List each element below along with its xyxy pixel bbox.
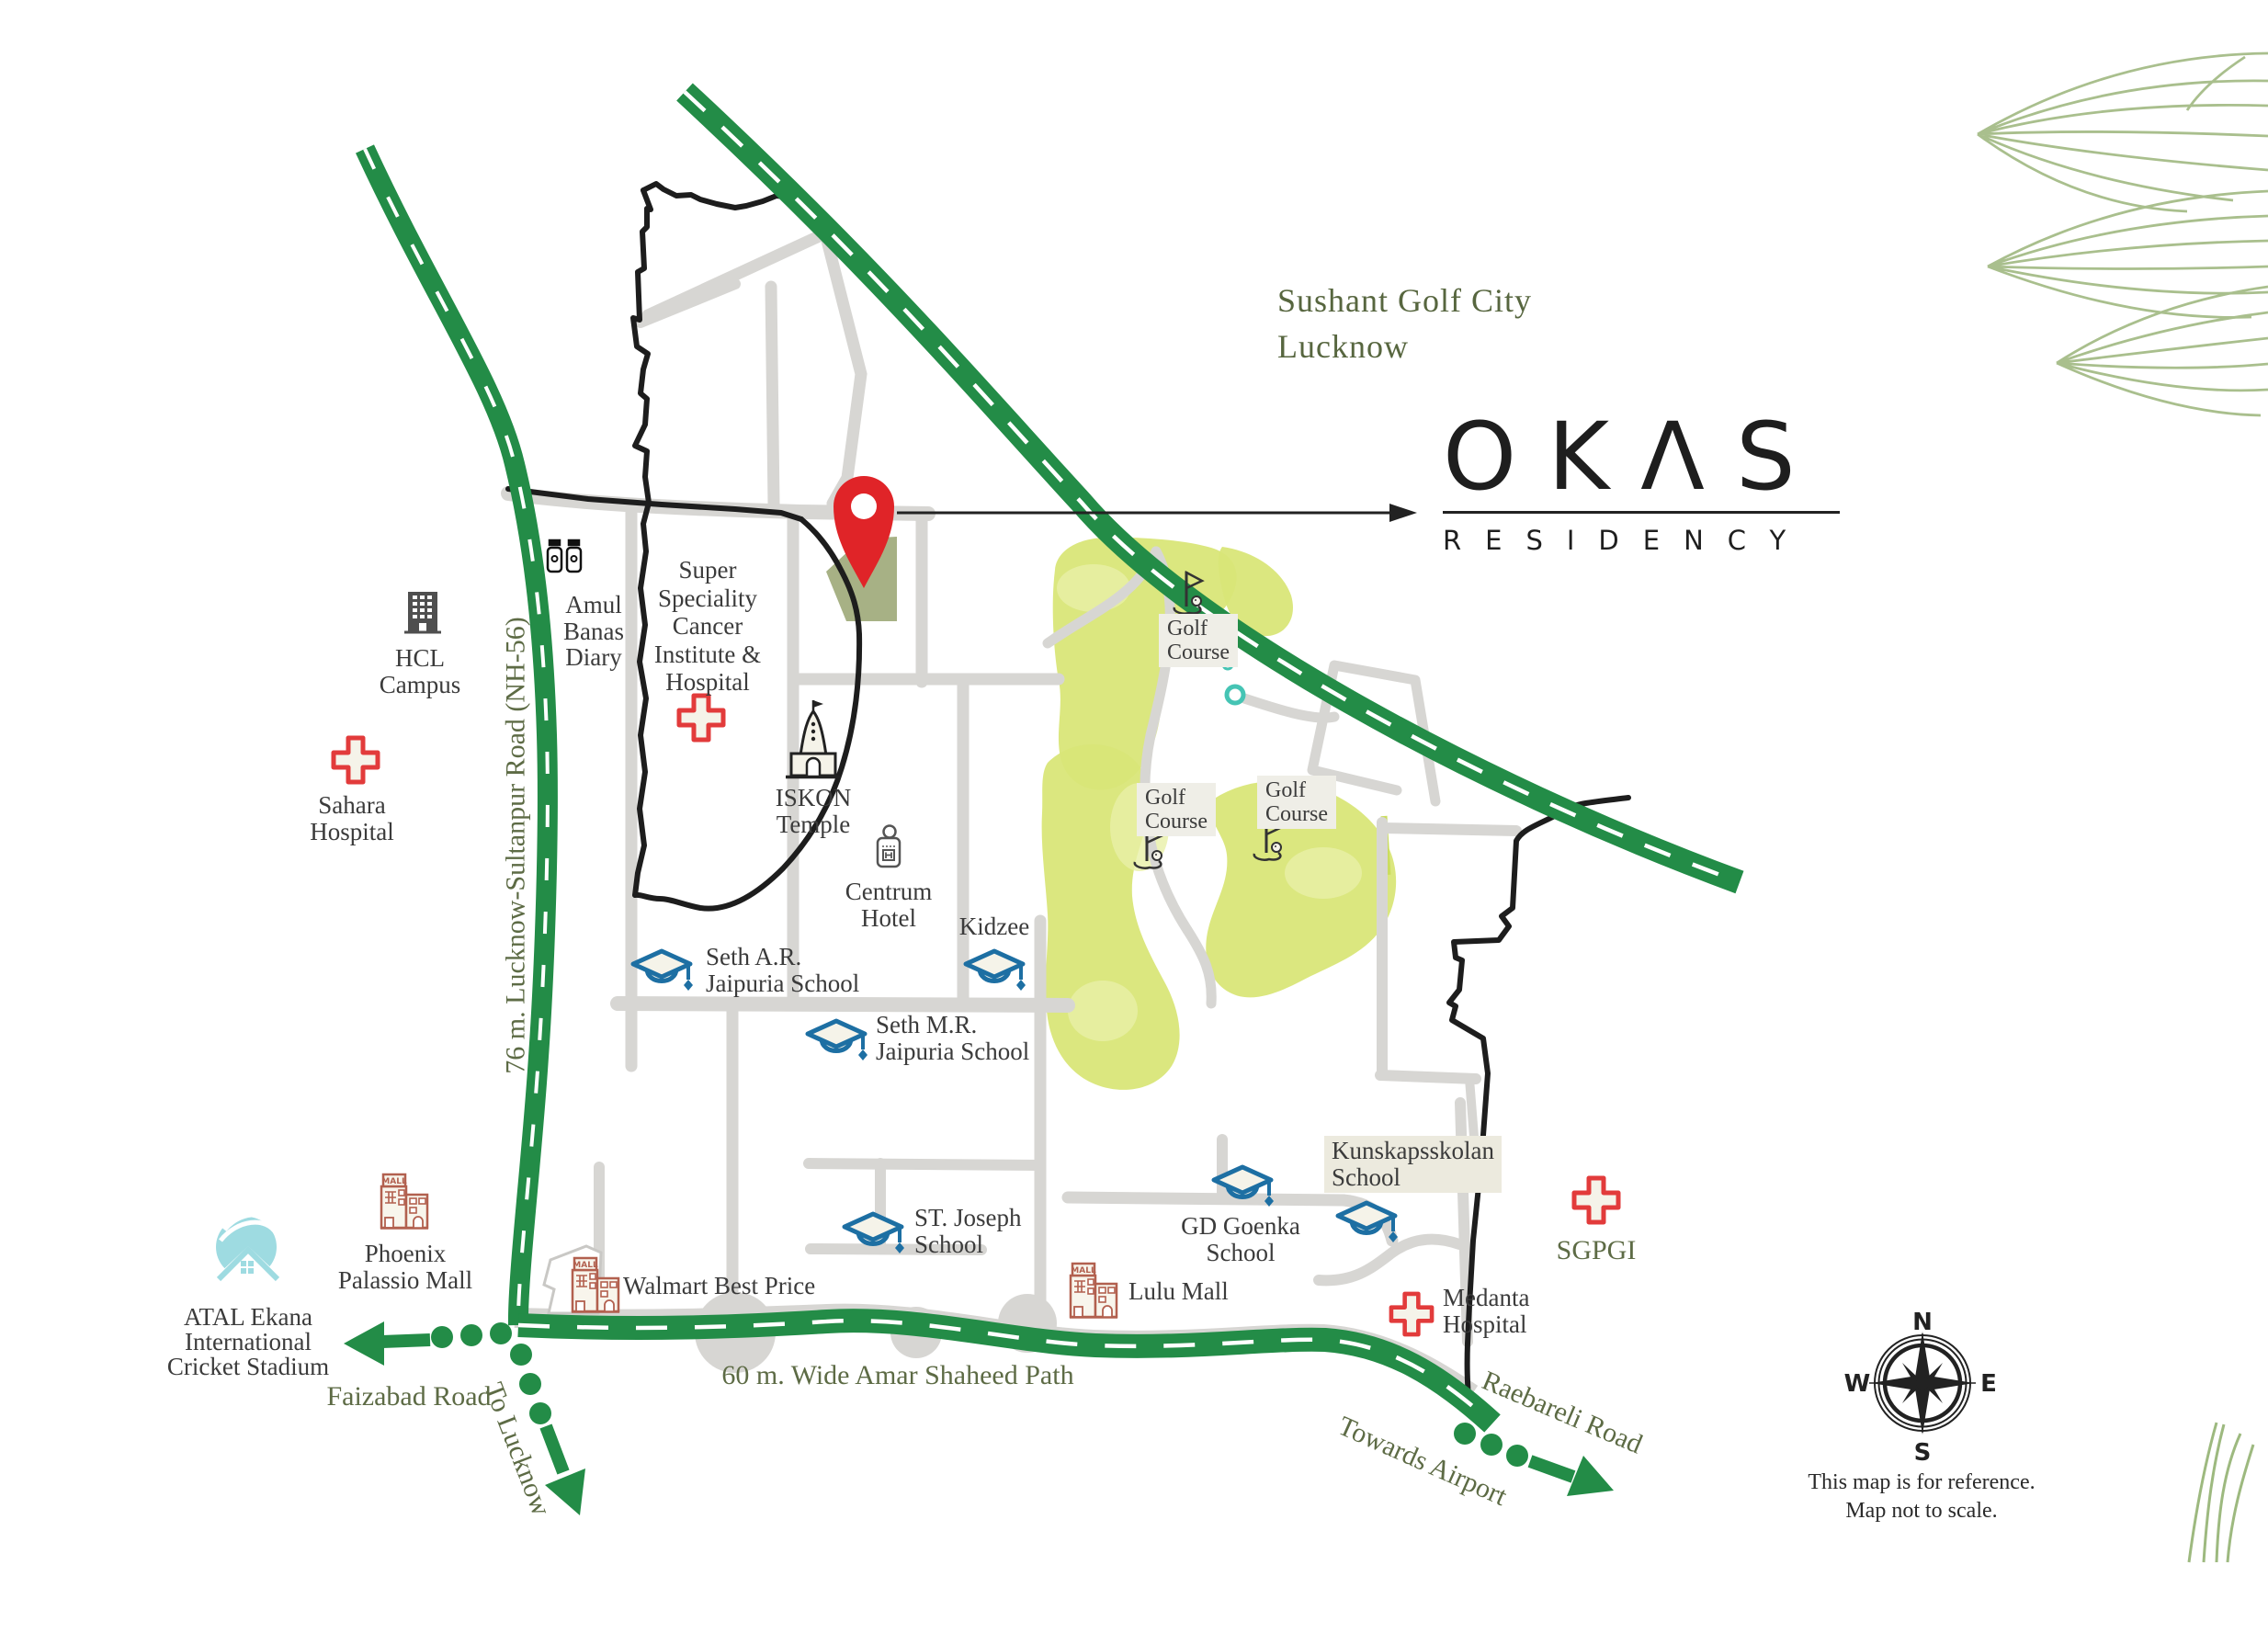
- label-line: Golf: [1265, 778, 1328, 802]
- label-st-joseph: ST. Joseph School: [914, 1205, 1022, 1258]
- okas-logo: OKΛS RESIDENCY: [1443, 410, 1847, 556]
- label-line: Centrum: [845, 879, 933, 905]
- label-line: Cancer: [654, 612, 761, 641]
- disclaimer-line: Map not to scale.: [1808, 1497, 2035, 1525]
- label-line: Hospital: [310, 819, 394, 845]
- label-kunskapsskolan: Kunskapsskolan School: [1324, 1136, 1502, 1193]
- label-gd-goenka: GD Goenka School: [1181, 1213, 1300, 1266]
- area-title-line1: Sushant Golf City: [1277, 278, 1532, 323]
- label-road-nh56: 76 m. Lucknow-Sultanpur Road (NH-56): [503, 617, 529, 1073]
- label-line: Course: [1167, 641, 1230, 664]
- label-golf-course-3: Golf Course: [1257, 776, 1336, 829]
- label-sgpgi: SGPGI: [1557, 1237, 1637, 1264]
- label-line: Golf: [1145, 786, 1208, 810]
- label-line: Jaipuria School: [706, 970, 859, 997]
- label-line: Golf: [1167, 617, 1230, 641]
- label-walmart: Walmart Best Price: [623, 1273, 815, 1299]
- label-line: ISKON: [776, 785, 852, 811]
- map-disclaimer: This map is for reference. Map not to sc…: [1808, 1469, 2035, 1525]
- map-canvas: MALL: [0, 0, 2268, 1633]
- label-golf-course-1: Golf Course: [1159, 614, 1238, 667]
- label-golf-course-2: Golf Course: [1137, 783, 1216, 836]
- label-line: Seth A.R.: [706, 944, 859, 970]
- area-title-line2: Lucknow: [1277, 323, 1532, 369]
- label-line: Hospital: [1443, 1311, 1529, 1338]
- label-line: Phoenix: [338, 1241, 472, 1267]
- label-amul-banas-diary: Amul Banas Diary: [563, 592, 624, 671]
- label-line: School: [1332, 1164, 1494, 1191]
- label-line: Amul: [563, 592, 624, 618]
- label-kidzee: Kidzee: [959, 913, 1029, 940]
- label-line: Walmart Best Price: [623, 1273, 815, 1299]
- label-line: Diary: [563, 644, 624, 671]
- label-line: Cricket Stadium: [167, 1355, 329, 1379]
- label-line: School: [914, 1231, 1022, 1258]
- label-road-to-lucknow: To Lucknow: [480, 1379, 555, 1519]
- label-road-raebareli: Raebareli Road: [1479, 1367, 1646, 1457]
- label-line: Course: [1265, 802, 1328, 826]
- label-lulu-mall: Lulu Mall: [1128, 1278, 1229, 1305]
- label-line: SGPGI: [1557, 1237, 1637, 1264]
- disclaimer-line: This map is for reference.: [1808, 1469, 2035, 1497]
- label-road-faizabad: Faizabad Road: [326, 1383, 491, 1410]
- label-line: GD Goenka: [1181, 1213, 1300, 1240]
- label-road-towards-airport: Towards Airport: [1334, 1412, 1511, 1511]
- label-hcl-campus: HCL Campus: [380, 645, 461, 698]
- okas-logo-wordmark: OKΛS: [1443, 410, 1847, 505]
- map-labels: Sushant Golf City Lucknow OKΛS RESIDENCY…: [0, 0, 2268, 1633]
- label-centrum-hotel: Centrum Hotel: [845, 879, 933, 932]
- label-line: ATAL Ekana: [167, 1305, 329, 1330]
- label-seth-mr-jaipuria: Seth M.R. Jaipuria School: [876, 1012, 1029, 1065]
- label-line: Palassio Mall: [338, 1267, 472, 1294]
- label-line: Super: [654, 556, 761, 584]
- label-road-amar-shaheed: 60 m. Wide Amar Shaheed Path: [721, 1362, 1073, 1389]
- label-line: Institute &: [654, 641, 761, 669]
- area-title: Sushant Golf City Lucknow: [1277, 278, 1532, 369]
- label-line: Speciality: [654, 584, 761, 613]
- label-iskon-temple: ISKON Temple: [776, 785, 852, 838]
- label-line: Lulu Mall: [1128, 1278, 1229, 1305]
- label-line: School: [1181, 1240, 1300, 1266]
- label-line: Campus: [380, 672, 461, 698]
- label-line: HCL: [380, 645, 461, 672]
- label-line: Kidzee: [959, 913, 1029, 940]
- label-line: Sahara: [310, 792, 394, 819]
- label-line: Course: [1145, 810, 1208, 834]
- okas-logo-subtitle: RESIDENCY: [1443, 525, 1847, 556]
- label-line: Medanta: [1443, 1285, 1529, 1311]
- label-phoenix-palassio: Phoenix Palassio Mall: [338, 1241, 472, 1294]
- label-line: Banas: [563, 618, 624, 645]
- label-line: Hospital: [654, 668, 761, 697]
- label-sahara-hospital: Sahara Hospital: [310, 792, 394, 845]
- label-atal-ekana-stadium: ATAL Ekana International Cricket Stadium: [167, 1305, 329, 1379]
- label-line: Seth M.R.: [876, 1012, 1029, 1038]
- label-seth-ar-jaipuria: Seth A.R. Jaipuria School: [706, 944, 859, 997]
- label-line: Hotel: [845, 905, 933, 932]
- label-line: Temple: [776, 811, 852, 838]
- label-medanta-hospital: Medanta Hospital: [1443, 1285, 1529, 1338]
- label-line: International: [167, 1330, 329, 1355]
- label-line: Kunskapsskolan: [1332, 1138, 1494, 1164]
- label-cancer-institute: Super Speciality Cancer Institute & Hosp…: [654, 556, 761, 697]
- label-line: Jaipuria School: [876, 1038, 1029, 1065]
- label-line: ST. Joseph: [914, 1205, 1022, 1231]
